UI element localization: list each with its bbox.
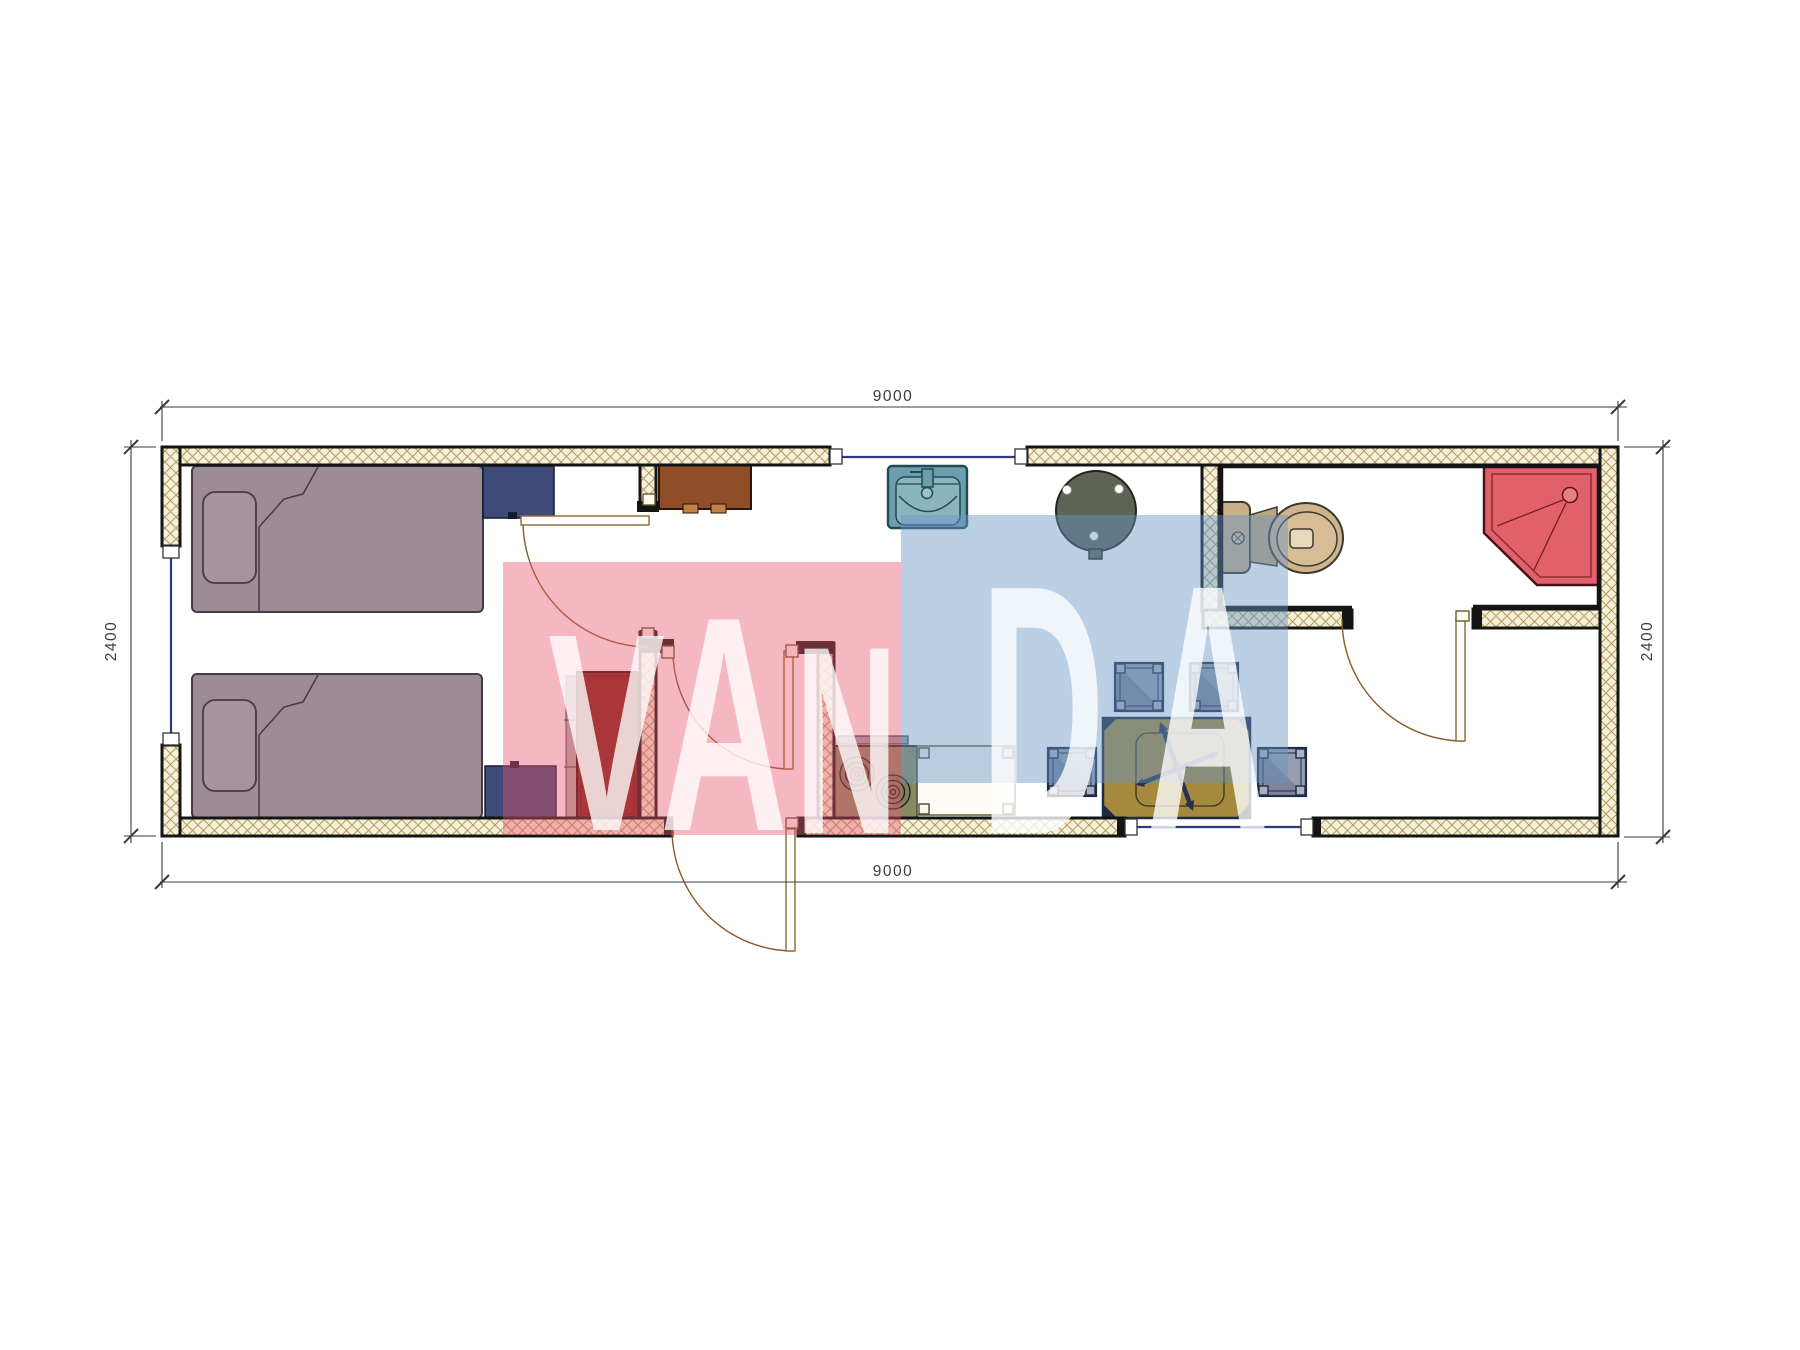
window-left [163, 546, 179, 745]
wall-left-lower [162, 745, 180, 836]
dim-label-bottom: 9000 [873, 863, 913, 880]
watermark-letter: A [1147, 512, 1269, 902]
window-top [830, 449, 1027, 464]
wall-right [1600, 447, 1618, 836]
dim-label-top: 9000 [873, 388, 913, 405]
watermark-letter: D [980, 512, 1105, 909]
watermark-letter: A [660, 553, 788, 895]
watermark: V A N D A [503, 512, 1288, 909]
bed-icon [192, 674, 482, 818]
shower-icon [1484, 466, 1599, 585]
wall-bottom-right [1313, 818, 1618, 836]
wall-top-left [162, 447, 830, 465]
bed-icon [192, 466, 483, 612]
dim-label-left: 2400 [103, 621, 120, 661]
nightstand-icon [483, 466, 554, 519]
bathroom-door [1342, 611, 1469, 741]
floor-plan-drawing: V A N D A 9000 9000 [0, 0, 1800, 1350]
wall-bathroom-bottom-b [1473, 609, 1600, 628]
cabinet-icon [659, 465, 751, 513]
dim-label-right: 2400 [1639, 621, 1656, 661]
wall-left-upper [162, 447, 180, 546]
watermark-letter: V [548, 575, 666, 890]
floor-plan-page: V A N D A 9000 9000 [0, 0, 1800, 1350]
wall-top-right [1027, 447, 1618, 465]
watermark-letter: N [795, 590, 898, 890]
